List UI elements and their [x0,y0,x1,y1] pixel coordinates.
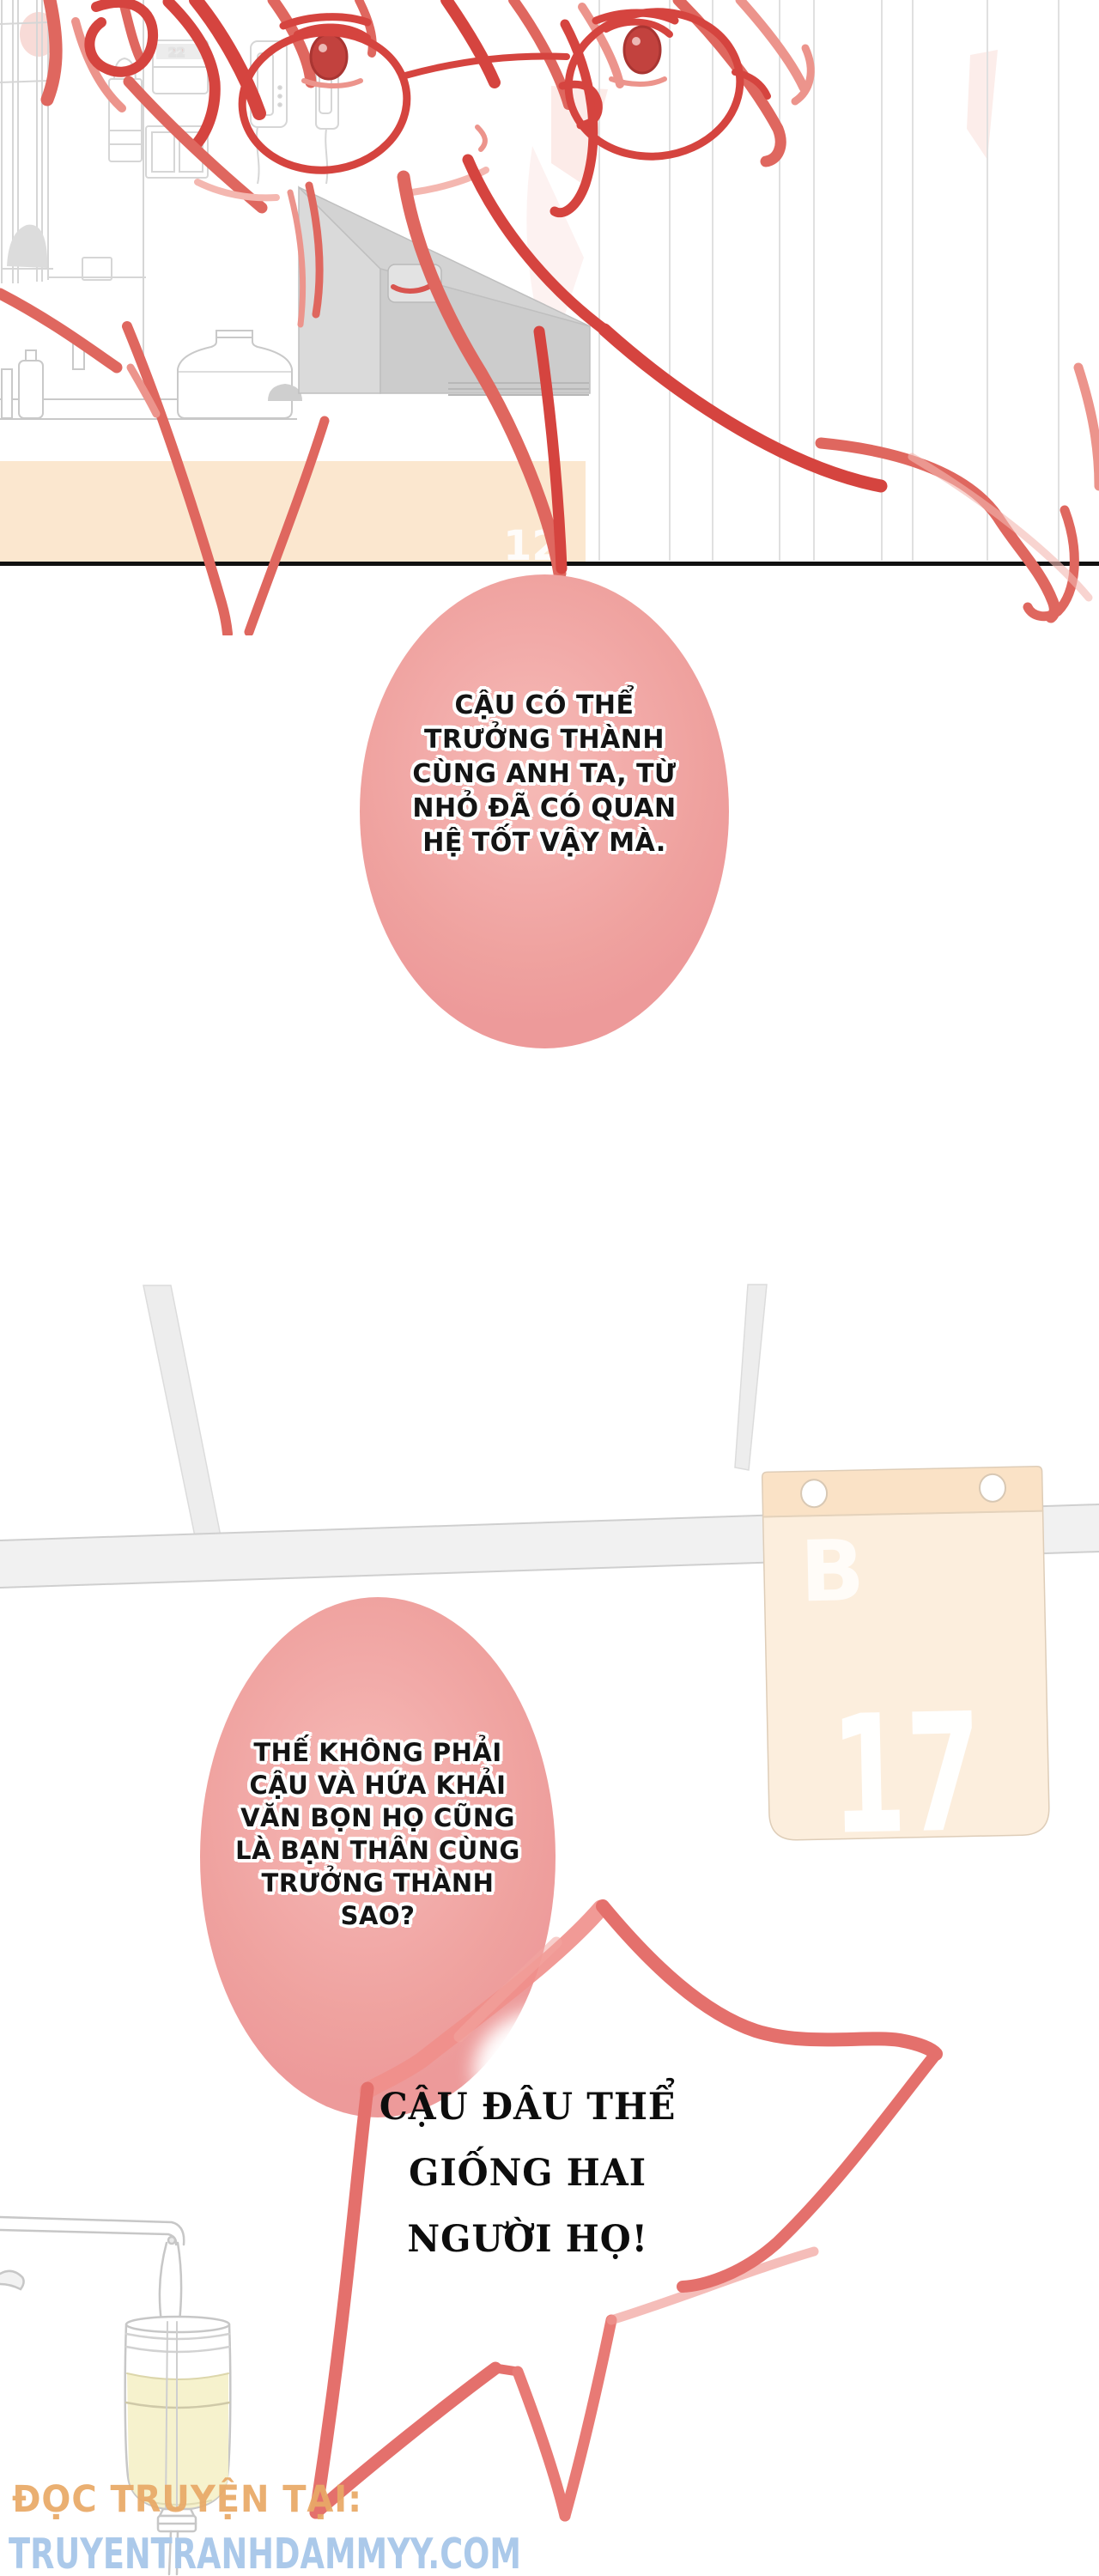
bubble1-line: CÙNG ANH TA, TỪ [360,757,729,792]
star-line: NGƯỜI HỌ! [365,2207,690,2273]
bubble2-line: THẾ KHÔNG PHẢI [200,1736,556,1769]
bubble1-line: HỆ TỐT VẬY MÀ. [360,826,729,860]
panel1-border [0,562,1099,566]
panel1-room-sketch: 22 [0,0,1099,635]
svg-text:22: 22 [168,46,185,60]
star-bubble-text: CẬU ĐÂU THỂ GIỐNG HAI NGƯỜI HỌ! [365,2075,690,2273]
bubble1-line: TRƯỞNG THÀNH [360,723,729,757]
calendar-number: 17 [829,1678,984,1871]
calendar-hole [801,1479,828,1508]
watermark-read-at: ĐỌC TRUYỆN TẠI: [12,2478,362,2521]
star-line: GIỐNG HAI [365,2141,690,2207]
watermark-site-name: TRUYENTRANHDAMMYY.COM [9,2530,521,2576]
manga-page: 22 [0,0,1099,2576]
bubble1-line: CẬU CÓ THỂ [360,689,729,723]
bubble1-line: NHỎ ĐÃ CÓ QUAN [360,792,729,826]
bubble2-line: VĂN BỌN HỌ CŨNG [200,1801,556,1834]
calendar-letter: B [799,1522,865,1622]
speech-bubble-1-text: CẬU CÓ THỂ TRƯỞNG THÀNH CÙNG ANH TA, TỪ … [360,689,729,860]
star-line: CẬU ĐÂU THỂ [365,2075,690,2141]
calendar-hole [980,1474,1006,1503]
bubble2-line: CẬU VÀ HỨA KHẢI [200,1769,556,1801]
wall-calendar: B 17 [762,1467,1051,1873]
